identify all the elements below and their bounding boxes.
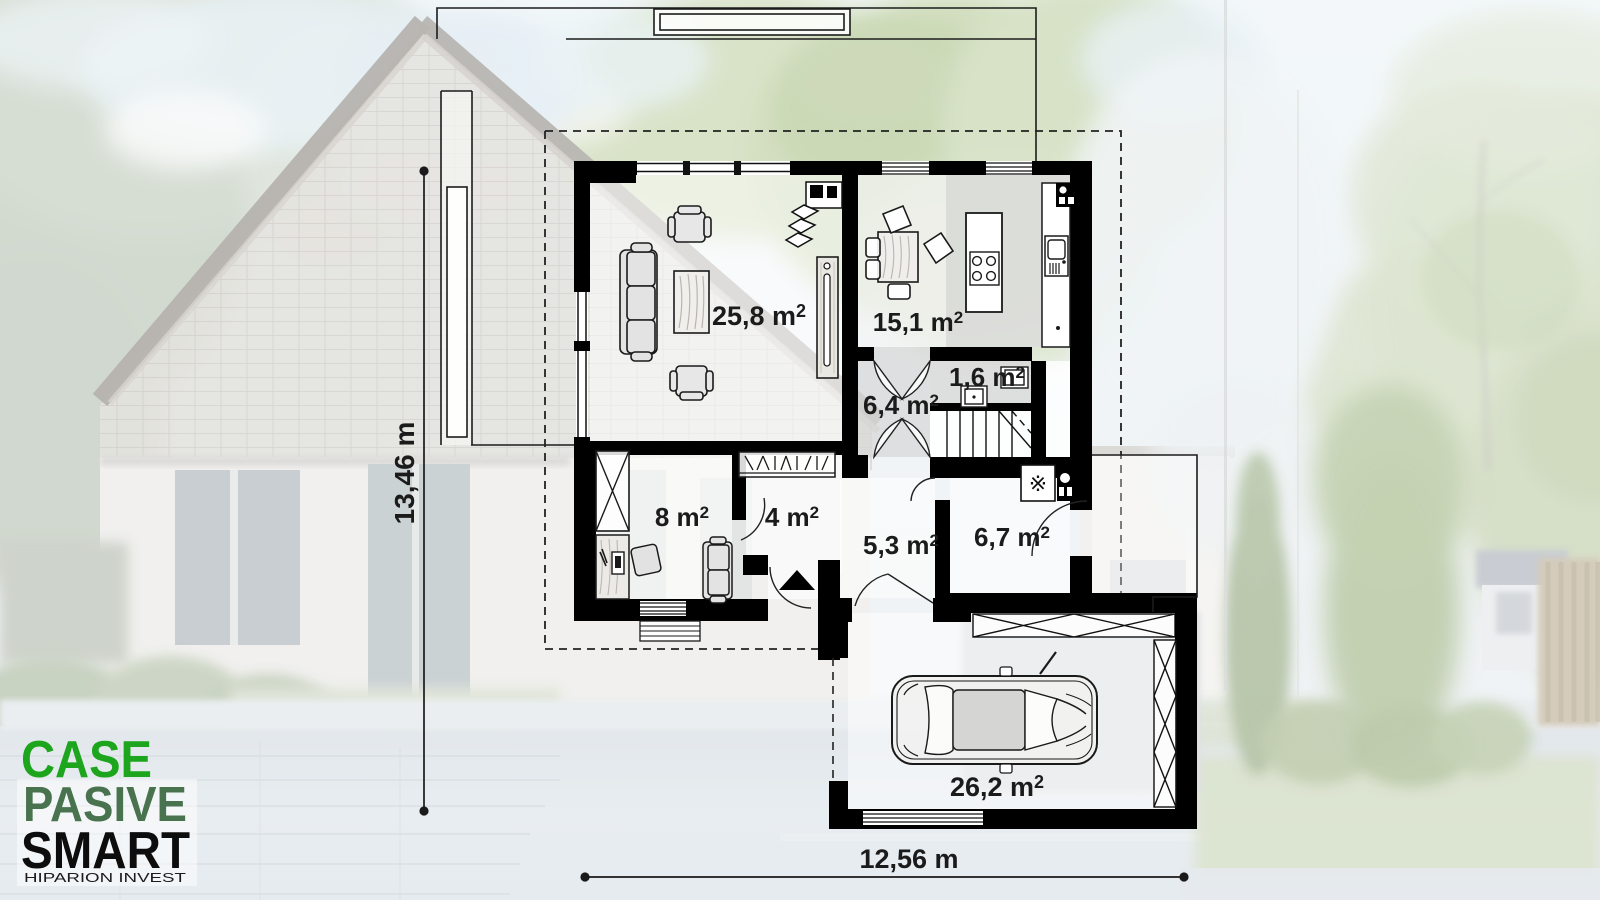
- svg-text:15,1 m2: 15,1 m2: [873, 307, 963, 337]
- svg-text:HIPARION INVEST: HIPARION INVEST: [24, 870, 186, 885]
- svg-text:6,7 m2: 6,7 m2: [974, 522, 1050, 552]
- svg-text:13,46 m: 13,46 m: [389, 422, 420, 525]
- svg-text:25,8 m2: 25,8 m2: [712, 301, 806, 331]
- svg-text:1,6 m2: 1,6 m2: [949, 362, 1025, 392]
- svg-text:26,2 m2: 26,2 m2: [950, 772, 1044, 802]
- svg-text:5,3 m2: 5,3 m2: [863, 530, 939, 560]
- svg-text:※: ※: [1029, 471, 1047, 496]
- svg-text:12,56 m: 12,56 m: [859, 844, 958, 874]
- svg-text:6,4 m2: 6,4 m2: [863, 390, 939, 420]
